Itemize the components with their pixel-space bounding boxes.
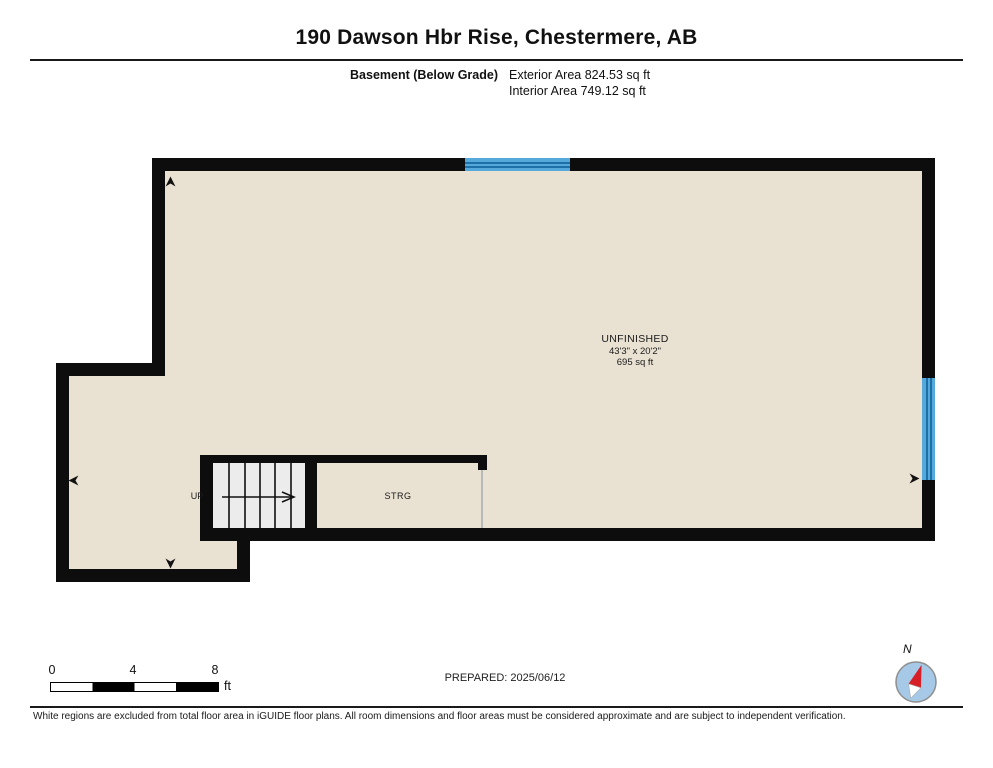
strg-opening-line bbox=[481, 470, 483, 528]
wall-top-left bbox=[152, 158, 465, 171]
interior-area: Interior Area 749.12 sq ft bbox=[509, 84, 646, 98]
wall-left-main bbox=[152, 158, 165, 376]
disclaimer-text: White regions are excluded from total fl… bbox=[33, 711, 846, 722]
prepared-text: PREPARED: 2025/06/12 bbox=[385, 672, 625, 684]
scale-bar bbox=[50, 682, 219, 692]
room-dimensions: 43'3" x 20'2" bbox=[535, 346, 735, 358]
extent-arrow-north-icon bbox=[165, 176, 176, 187]
window-right-mullion bbox=[930, 378, 932, 480]
extent-arrow-west-icon bbox=[68, 475, 79, 486]
strg-door-jamb bbox=[478, 455, 487, 470]
north-label: N bbox=[903, 642, 912, 656]
stairs-strg-divider-wall bbox=[305, 455, 317, 528]
stairs-direction-arrow-icon bbox=[220, 490, 304, 504]
stairs-block-top-wall bbox=[200, 455, 487, 463]
window-right-mullion bbox=[926, 378, 928, 480]
header-rule bbox=[30, 59, 963, 61]
wall-ext-left bbox=[56, 363, 69, 582]
wall-ext-right bbox=[237, 528, 250, 582]
wall-ext-bottom bbox=[56, 569, 250, 582]
window-top bbox=[465, 158, 570, 171]
room-area: 695 sq ft bbox=[535, 357, 735, 369]
window-top-mullion bbox=[465, 162, 570, 164]
scale-tick-0: 0 bbox=[45, 663, 59, 677]
room-name: UNFINISHED bbox=[535, 334, 735, 346]
wall-bottom-main bbox=[200, 528, 935, 541]
scale-tick-4: 4 bbox=[126, 663, 140, 677]
wall-step bbox=[56, 363, 165, 376]
floor-plan-page: { "header": { "title": "190 Dawson Hbr R… bbox=[0, 0, 993, 768]
room-label: UNFINISHED 43'3" x 20'2" 695 sq ft bbox=[535, 334, 735, 369]
floor-label: Basement (Below Grade) bbox=[0, 68, 498, 82]
strg-label: STRG bbox=[368, 491, 428, 501]
exterior-area: Exterior Area 824.53 sq ft bbox=[509, 68, 650, 82]
page-title: 190 Dawson Hbr Rise, Chestermere, AB bbox=[0, 26, 993, 50]
compass-icon bbox=[893, 659, 939, 705]
wall-right-upper bbox=[922, 158, 935, 378]
window-top-mullion bbox=[465, 166, 570, 168]
scale-tick-8: 8 bbox=[208, 663, 222, 677]
extent-arrow-east-icon bbox=[909, 473, 920, 484]
scale-unit: ft bbox=[224, 679, 231, 693]
window-right bbox=[922, 378, 935, 480]
up-label: UP bbox=[183, 491, 211, 501]
footer-rule bbox=[30, 706, 963, 708]
wall-top-right bbox=[570, 158, 935, 171]
extent-arrow-south-icon bbox=[165, 558, 176, 569]
